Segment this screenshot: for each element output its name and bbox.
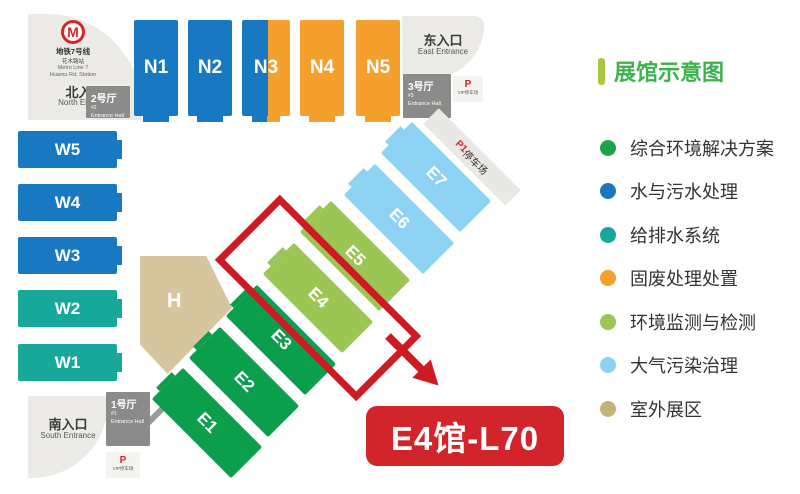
hall-w4: W4 xyxy=(18,184,117,221)
hall-w5: W5 xyxy=(18,131,117,168)
legend-dot-icon xyxy=(600,140,616,156)
hall-tab xyxy=(117,299,122,318)
hall-w2-label: W2 xyxy=(55,299,81,319)
hall-w4-label: W4 xyxy=(55,193,81,213)
hall-tab xyxy=(365,116,391,122)
hall-e6-label: E6 xyxy=(385,205,414,234)
legend-item-label: 综合环境解决方案 xyxy=(630,135,774,161)
hall-tab xyxy=(252,116,281,122)
entrance-hall-3: 3号厅 #3 Entrance Hall xyxy=(403,74,451,118)
shanghai-metro-icon: M xyxy=(61,20,85,44)
hall-tab xyxy=(309,116,335,122)
hall-tab xyxy=(117,193,122,212)
parking-p-icon: P xyxy=(453,76,483,90)
hall-n4-label: N4 xyxy=(310,57,334,79)
legend-item: 环境监测与检测 xyxy=(600,312,756,332)
hall-w5-label: W5 xyxy=(55,140,81,160)
hall-tab xyxy=(143,116,169,122)
hall-w3-label: W3 xyxy=(55,246,81,266)
entrance-hall-2-name: 2号厅 xyxy=(91,90,130,105)
p1-parking-label: 停车场 xyxy=(460,145,492,177)
hall-n5-label: N5 xyxy=(366,57,390,79)
hall-tab xyxy=(348,168,367,187)
legend-item: 水与污水处理 xyxy=(600,181,738,201)
entrance-hall-3-name: 3号厅 xyxy=(408,78,451,93)
entrance-hall-2-sub: Entrance Hall xyxy=(91,113,130,119)
legend-item-label: 固废处理处置 xyxy=(630,265,738,291)
hall-n2: N2 xyxy=(188,20,232,116)
entrance-hall-3-sub: Entrance Hall xyxy=(408,101,451,107)
metro-line-en: Metro Line 7 xyxy=(28,65,118,72)
legend-item: 给排水系统 xyxy=(600,225,720,245)
legend-item-label: 给排水系统 xyxy=(630,222,720,248)
legend-dot-icon xyxy=(600,401,616,417)
hall-tab xyxy=(117,353,122,372)
entrance-hall-1-sub: Entrance Hall xyxy=(111,419,150,425)
legend-dot-icon xyxy=(600,314,616,330)
metro-line-zh: 地铁7号线 xyxy=(28,46,118,57)
entrance-hall-3-num: #3 xyxy=(408,93,451,101)
hall-tab xyxy=(156,372,175,391)
hall-tab xyxy=(117,246,122,265)
legend-item: 室外展区 xyxy=(600,399,702,419)
vip-parking-south: P VIP停车场 xyxy=(106,452,140,478)
hall-n3-label: N3 xyxy=(254,57,278,79)
legend-title: 展馆示意图 xyxy=(598,55,724,87)
booth-callout-badge: E4馆-L70 xyxy=(366,406,564,466)
hall-w1-label: W1 xyxy=(55,353,81,373)
vip-parking-south-label: VIP停车场 xyxy=(106,466,140,472)
vip-parking-north: P VIP停车场 xyxy=(453,76,483,102)
legend-title-text: 展馆示意图 xyxy=(614,55,724,87)
legend-item: 固废处理处置 xyxy=(600,268,738,288)
hall-n1: N1 xyxy=(134,20,178,116)
hall-n3: N3 xyxy=(242,20,290,116)
outdoor-zone-h-label: H xyxy=(167,290,181,313)
legend-item: 综合环境解决方案 xyxy=(600,138,774,158)
hall-w2: W2 xyxy=(18,290,117,327)
hall-e7-label: E7 xyxy=(422,163,451,192)
hall-tab xyxy=(197,116,223,122)
vip-parking-north-label: VIP停车场 xyxy=(453,90,483,96)
legend-title-bar-icon xyxy=(598,58,605,85)
metro-station-en: Huamu Rd. Station xyxy=(28,72,118,79)
east-entrance-label-en: East Entrance xyxy=(402,47,484,56)
hall-n4: N4 xyxy=(300,20,344,116)
legend-item-label: 室外展区 xyxy=(630,396,702,422)
hall-w1: W1 xyxy=(18,344,117,381)
entrance-hall-1-name: 1号厅 xyxy=(111,396,150,411)
south-entrance-label-en: South Entrance xyxy=(28,431,108,440)
east-entrance-plaza: 东入口 East Entrance xyxy=(402,16,484,78)
legend-item-label: 水与污水处理 xyxy=(630,178,738,204)
legend-dot-icon xyxy=(600,270,616,286)
hall-e2-label: E2 xyxy=(230,368,259,397)
legend-dot-icon xyxy=(600,183,616,199)
legend-item: 大气污染治理 xyxy=(600,355,738,375)
entrance-hall-2-num: #2 xyxy=(91,105,130,113)
metro-station-zh: 花木路站 xyxy=(28,57,118,65)
hall-w3: W3 xyxy=(18,237,117,274)
entrance-hall-1: 1号厅 #1 Entrance Hall xyxy=(106,392,150,446)
hall-tab xyxy=(385,126,404,145)
exhibition-map-canvas: 北入口 North Entrance M 地铁7号线 花木路站 Metro Li… xyxy=(0,0,800,494)
parking-p-icon: P xyxy=(106,452,140,466)
hall-n5: N5 xyxy=(356,20,400,116)
legend-item-label: 大气污染治理 xyxy=(630,352,738,378)
hall-n2-label: N2 xyxy=(198,57,222,79)
entrance-hall-1-num: #1 xyxy=(111,411,150,419)
legend-dot-icon xyxy=(600,227,616,243)
metro-station-block: M 地铁7号线 花木路站 Metro Line 7 Huamu Rd. Stat… xyxy=(28,20,118,80)
south-entrance-plaza: 南入口 South Entrance xyxy=(28,396,108,478)
hall-tab xyxy=(117,140,122,159)
legend-item-label: 环境监测与检测 xyxy=(630,309,756,335)
hall-e1-label: E1 xyxy=(193,409,222,438)
legend-dot-icon xyxy=(600,357,616,373)
entrance-hall-2: 2号厅 #2 Entrance Hall xyxy=(86,86,130,118)
hall-n1-label: N1 xyxy=(144,57,168,79)
